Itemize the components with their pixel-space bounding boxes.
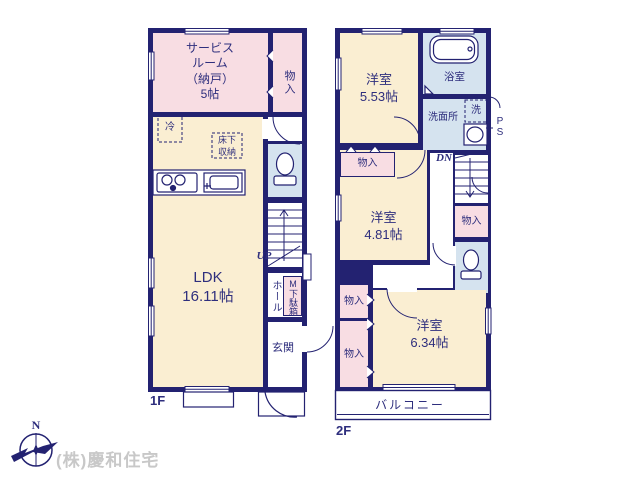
washer-label: 洗 bbox=[465, 105, 487, 118]
floor-2f-label: 2F bbox=[336, 423, 351, 438]
closet-2f-c-label: 物入 bbox=[338, 349, 370, 362]
room-toilet-1f bbox=[268, 144, 302, 197]
terrace-step bbox=[184, 392, 234, 407]
entrance-label: 玄関 bbox=[264, 341, 302, 355]
closet-1f-label: 物入 bbox=[281, 57, 297, 109]
room-ldk bbox=[153, 117, 263, 387]
closet-2f-d-label: 物入 bbox=[455, 216, 488, 229]
western-room-553-label: 洋室 5.53帖 bbox=[340, 72, 418, 105]
ldk-label: LDK 16.11帖 bbox=[153, 268, 263, 306]
compass-north-label: N bbox=[27, 418, 45, 433]
room-bath bbox=[423, 33, 486, 94]
underfloor-storage-label: 床下 収納 bbox=[209, 135, 245, 158]
room-wc-ante-1f bbox=[268, 117, 302, 141]
western-room-481-label: 洋室 4.81帖 bbox=[340, 210, 427, 243]
room-toilet-2f bbox=[455, 242, 488, 293]
pipe-space-label: P S bbox=[494, 116, 506, 138]
washroom-label: 洗面所 bbox=[420, 112, 466, 125]
entrance-porch bbox=[259, 392, 305, 417]
company-name: (株)慶和住宅 bbox=[56, 446, 159, 471]
floorplan-canvas: サービス ルーム （納戸） 5帖 物入 冷 床下 収納 LDK 16.11帖 U… bbox=[0, 0, 640, 480]
hall-corridor-2f-h bbox=[373, 265, 453, 288]
balcony-label: バルコニー bbox=[360, 398, 460, 413]
service-room-label: サービス ルーム （納戸） 5帖 bbox=[158, 41, 262, 102]
western-room-634-label: 洋室 6.34帖 bbox=[373, 318, 486, 351]
closet-2f-b-label: 物入 bbox=[338, 296, 370, 309]
up-label: UP bbox=[250, 249, 278, 263]
compass-icon bbox=[11, 433, 58, 466]
bath-label: 浴室 bbox=[423, 71, 486, 84]
fixtures-overlay bbox=[0, 0, 640, 480]
room-stairs-2f bbox=[455, 155, 488, 203]
down-label: DN bbox=[432, 151, 456, 165]
shoe-box-label: M下駄箱 bbox=[287, 278, 300, 316]
fridge-label: 冷 bbox=[158, 122, 182, 135]
floor-1f-label: 1F bbox=[150, 393, 165, 408]
closet-2f-a-label: 物入 bbox=[340, 158, 395, 171]
hall-label: ホール bbox=[268, 275, 283, 317]
